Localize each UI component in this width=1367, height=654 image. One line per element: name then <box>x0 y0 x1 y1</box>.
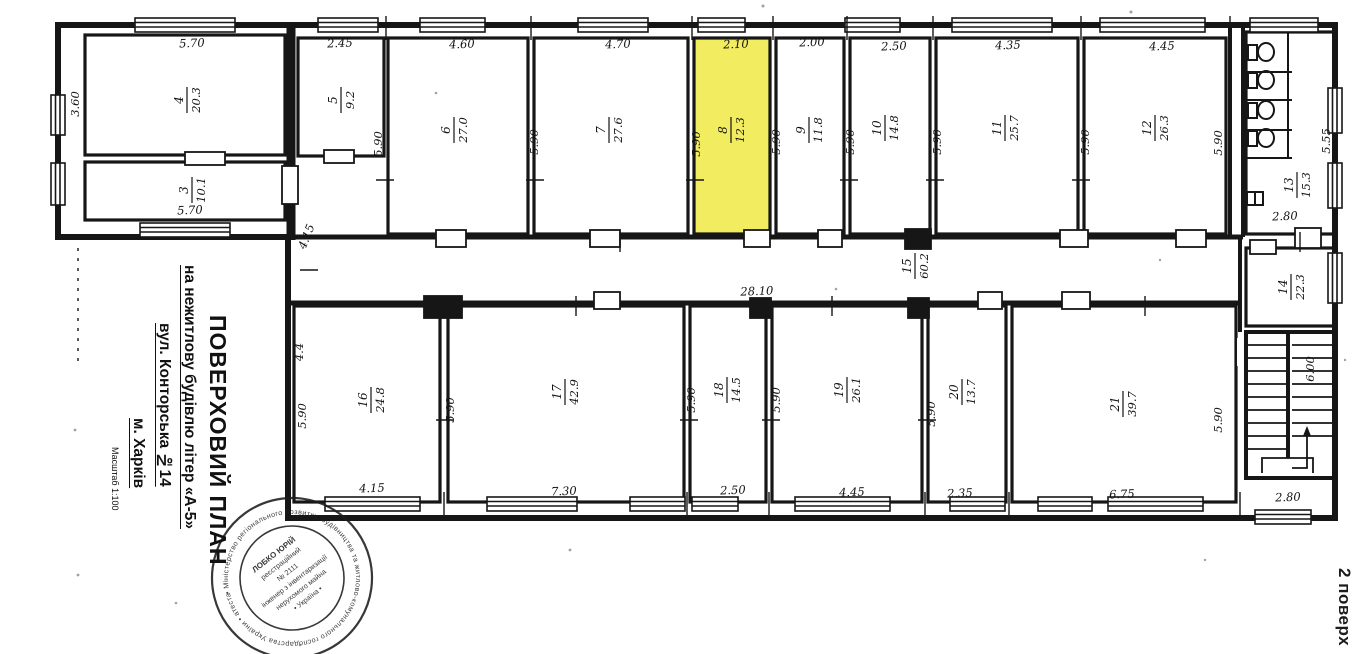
window <box>1250 18 1318 32</box>
room-14 <box>1246 248 1334 326</box>
door-room9 <box>818 230 842 247</box>
dimension-label: 4.60 <box>448 37 475 52</box>
dimension-label: 5.70 <box>177 203 203 218</box>
dimension-label: 5.90 <box>527 129 541 155</box>
dimension-label: 6.00 <box>1303 356 1317 382</box>
rooms-layer <box>85 32 1334 502</box>
svg-text:3: 3 <box>177 186 191 194</box>
document-subtitle: на нежитлову будівлю літер «А-5» <box>180 255 198 654</box>
svg-text:60.2: 60.2 <box>917 253 931 279</box>
svg-text:8: 8 <box>716 126 730 134</box>
window <box>698 18 745 32</box>
svg-text:42.9: 42.9 <box>567 379 581 406</box>
svg-text:26.1: 26.1 <box>849 377 863 404</box>
door-room4-room3 <box>185 152 225 165</box>
window <box>692 497 738 511</box>
pilaster <box>905 229 931 249</box>
document-address: вул. Конторська №14 <box>155 255 173 654</box>
dimension-label: 7.30 <box>551 484 577 499</box>
svg-text:27.0: 27.0 <box>456 117 470 144</box>
door-room14 <box>1250 240 1276 254</box>
svg-text:20.3: 20.3 <box>189 87 203 114</box>
dimension-label: 2.35 <box>946 486 973 501</box>
dimension-label: 5.90 <box>443 397 457 423</box>
dimension-label: 5.90 <box>1078 129 1092 155</box>
door-room13 <box>1295 228 1321 248</box>
dimension-label: 5.90 <box>295 403 309 429</box>
dimension-label: 5.70 <box>179 36 205 51</box>
svg-text:10.1: 10.1 <box>194 177 208 203</box>
svg-text:11: 11 <box>990 120 1004 135</box>
door-room5 <box>324 150 354 163</box>
svg-text:5: 5 <box>326 96 340 104</box>
dimension-label: 2.00 <box>798 35 825 50</box>
room-9 <box>776 38 844 234</box>
svg-text:27.6: 27.6 <box>611 117 625 144</box>
door-room12 <box>1176 230 1206 247</box>
door-room6 <box>436 230 466 247</box>
dimension-label: 5.90 <box>769 129 783 155</box>
svg-text:13: 13 <box>1282 177 1296 193</box>
svg-text:39.7: 39.7 <box>1125 391 1139 417</box>
svg-text:21: 21 <box>1108 396 1122 412</box>
window <box>325 497 420 511</box>
door-room20 <box>978 292 1002 309</box>
svg-text:12.3: 12.3 <box>733 117 747 143</box>
door-room3-corridor <box>282 166 298 204</box>
dimension-label: 5.55 <box>1319 128 1333 154</box>
window <box>51 95 65 135</box>
dimension-label: 2.50 <box>719 483 746 498</box>
window <box>952 18 1052 32</box>
dimension-label: 5.90 <box>371 131 385 157</box>
room-21 <box>1012 306 1236 502</box>
svg-text:12: 12 <box>1140 120 1154 135</box>
room-17 <box>448 306 684 502</box>
window <box>51 163 65 205</box>
svg-text:10: 10 <box>870 120 884 136</box>
window <box>1100 18 1205 32</box>
dimension-label: 5.90 <box>1211 130 1225 156</box>
door-room11 <box>1060 230 1088 247</box>
svg-text:16: 16 <box>356 392 370 408</box>
svg-text:9.2: 9.2 <box>343 91 357 109</box>
window <box>135 18 235 32</box>
dimension-label: 28.10 <box>739 283 773 298</box>
stairs-entry-opening <box>1237 338 1244 366</box>
document-title: ПОВЕРХОВИЙ ПЛАН <box>204 255 231 654</box>
room-4 <box>85 35 285 155</box>
svg-text:14: 14 <box>1276 279 1290 294</box>
window <box>1255 510 1311 524</box>
stair-landing <box>1262 458 1313 473</box>
dimension-label: 4.45 <box>838 485 865 500</box>
svg-text:13.7: 13.7 <box>964 379 978 405</box>
dimension-label: 4.15 <box>358 481 385 496</box>
door-room7 <box>590 230 620 247</box>
door-room21 <box>1062 292 1090 309</box>
window <box>845 18 900 32</box>
dimension-label: 2.45 <box>326 36 353 51</box>
window <box>578 18 648 32</box>
window <box>630 497 685 511</box>
svg-text:19: 19 <box>832 382 846 398</box>
dimension-label: 4.35 <box>994 38 1021 53</box>
svg-text:20: 20 <box>947 384 961 401</box>
room-19 <box>772 306 922 502</box>
room-18 <box>690 306 766 502</box>
floor-plan-document: 420.3310.159.2627.0727.6812.3911.81014.8… <box>0 0 1367 654</box>
floor-label: 2 поверх <box>1334 568 1354 646</box>
room-label-15: 1560.2 <box>900 253 931 279</box>
window <box>1328 253 1342 303</box>
dimension-label: 4.70 <box>604 37 631 52</box>
dimension-label: 5.90 <box>843 129 857 155</box>
document-scale: Масштаб 1:100 <box>110 255 120 654</box>
dimension-label: 5.90 <box>684 387 698 413</box>
dimension-label: 2.80 <box>1271 209 1298 224</box>
window <box>318 18 378 32</box>
dimension-label: 5.90 <box>689 131 703 157</box>
svg-text:9: 9 <box>794 126 808 134</box>
dimension-label: 6.75 <box>1109 487 1135 502</box>
svg-text:7: 7 <box>594 126 608 134</box>
window <box>420 18 485 32</box>
dimension-label: 3.60 <box>68 91 82 117</box>
document-city: м. Харків <box>129 255 147 654</box>
room-8 <box>694 38 770 234</box>
stair-arrow <box>1303 426 1311 436</box>
svg-text:26.3: 26.3 <box>1157 115 1171 142</box>
svg-text:14.8: 14.8 <box>887 115 901 141</box>
svg-text:15.3: 15.3 <box>1299 172 1313 198</box>
dimension-label: 5.90 <box>1211 407 1225 433</box>
dimension-label: 4.45 <box>1148 39 1175 54</box>
svg-text:17: 17 <box>550 384 564 400</box>
dimension-label: 5.90 <box>924 401 938 427</box>
svg-text:24.8: 24.8 <box>373 387 387 414</box>
dimension-label: 2.10 <box>722 37 749 52</box>
svg-text:14.5: 14.5 <box>729 377 743 403</box>
dimension-label: 2.80 <box>1274 490 1301 505</box>
window <box>140 223 230 237</box>
svg-text:22.3: 22.3 <box>1293 274 1307 301</box>
dimension-label: 5.90 <box>769 387 783 413</box>
pilaster <box>750 298 771 318</box>
svg-text:11.8: 11.8 <box>811 117 825 143</box>
pilaster <box>908 298 929 318</box>
dimension-label: 5.90 <box>930 129 944 155</box>
pilaster <box>424 296 462 318</box>
svg-text:18: 18 <box>712 382 726 398</box>
window <box>1328 163 1342 208</box>
door-room8 <box>744 230 770 247</box>
svg-text:6: 6 <box>439 126 453 134</box>
svg-text:4: 4 <box>172 96 186 105</box>
title-block: ПОВЕРХОВИЙ ПЛАН на нежитлову будівлю літ… <box>104 255 231 654</box>
stairs <box>1246 332 1334 473</box>
door-room17 <box>594 292 620 309</box>
window <box>1328 88 1342 133</box>
window <box>487 497 577 511</box>
svg-text:15: 15 <box>900 258 914 273</box>
stair-direction-line <box>1292 432 1307 468</box>
dimension-label: 4.4 <box>292 343 306 362</box>
window <box>1038 497 1092 511</box>
svg-text:25.7: 25.7 <box>1007 115 1021 142</box>
dimension-label: 2.50 <box>880 39 907 54</box>
